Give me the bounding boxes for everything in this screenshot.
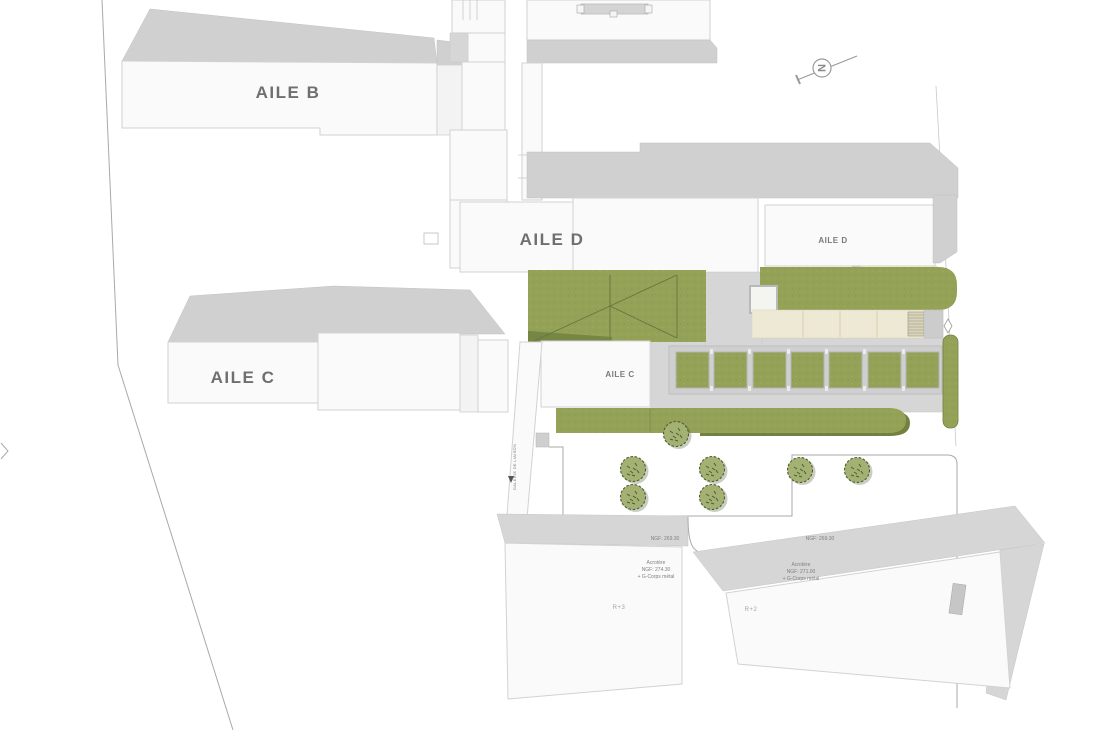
aile-d-main-label: AILE D — [520, 230, 585, 249]
aile-d-roof-mass — [527, 143, 958, 198]
aile-d-east-block — [765, 205, 935, 266]
patio-skylight — [750, 286, 777, 313]
aile-d-small-label: AILE D — [818, 236, 847, 245]
aile-d-main-block — [573, 198, 758, 273]
path-curve — [688, 517, 712, 553]
r3-label: R+3 — [613, 605, 626, 611]
aile-b-label: AILE B — [256, 83, 321, 102]
north-letter: N — [815, 64, 827, 72]
north-white-block-2 — [462, 62, 505, 137]
planter-row — [669, 346, 942, 394]
north-small-block — [452, 0, 505, 33]
lawn-east-strip — [943, 335, 958, 428]
svg-text:NGF: 274.30: NGF: 274.30 — [642, 567, 671, 573]
north-white-block — [468, 33, 505, 62]
site-plan: N AILE B AILE D AILE D — [0, 0, 1100, 730]
aile-c-small-label: AILE C — [605, 370, 634, 379]
tree-icon — [845, 458, 873, 486]
r2-label: R+2 — [745, 607, 758, 613]
svg-text:+ G-Corps métal: + G-Corps métal — [638, 574, 675, 580]
lawn-south — [556, 408, 906, 433]
planter-cell — [676, 352, 709, 388]
small-bracket — [424, 233, 438, 244]
tree-icon — [621, 457, 649, 485]
planter-cell — [906, 352, 939, 388]
stair-icon — [908, 312, 924, 336]
aile-c-main-label: AILE C — [211, 368, 276, 387]
diamond-marker — [944, 319, 952, 333]
building-aile-d: AILE D AILE D — [460, 143, 958, 281]
rooftop-bar-center — [610, 11, 617, 17]
planter-cell — [868, 352, 901, 388]
svg-text:Acrotère: Acrotère — [647, 560, 666, 566]
planter-cell — [791, 352, 824, 388]
courtyard: AILE C — [528, 267, 958, 436]
planter-cell — [829, 352, 862, 388]
rooftop-bar-end-west — [577, 5, 584, 13]
lawn-east — [760, 267, 957, 310]
tree-icon — [700, 485, 728, 513]
ngf-left-label: NGF: 269.30 — [651, 536, 680, 542]
aile-c-connector-2 — [478, 340, 508, 412]
aile-b-roof — [122, 9, 437, 63]
corridor-canopy — [536, 433, 549, 447]
aile-d-west-annex-upper — [450, 130, 507, 200]
galerie-label: GALERIE DE LIAISON — [512, 444, 517, 490]
aile-c-mid-block — [318, 333, 460, 410]
rooftop-bar-end-east — [645, 5, 652, 13]
svg-text:NGF: 271.00: NGF: 271.00 — [787, 569, 816, 575]
south-buildings: R+3 NGF: 269.30 Acrotère NGF: 274.30 + G… — [497, 506, 1045, 700]
terrace — [752, 310, 943, 338]
planter-cell — [714, 352, 747, 388]
north-main-roofband — [527, 40, 717, 63]
north-gray-block — [450, 33, 468, 62]
left-margin-tick — [1, 443, 8, 459]
svg-text:+ G-Corps métal: + G-Corps métal — [783, 576, 820, 582]
ngf-right-label: NGF: 269.30 — [806, 536, 835, 542]
building-aile-c: AILE C — [168, 286, 508, 412]
tree-icon — [621, 485, 649, 513]
planter-cell — [753, 352, 786, 388]
aile-c-connector-1 — [460, 335, 478, 412]
north-arrow-icon: N — [796, 56, 857, 84]
building-aile-b: AILE B — [122, 9, 478, 135]
svg-text:Acrotère: Acrotère — [792, 562, 811, 568]
aile-d-east-gray-end — [933, 195, 957, 263]
tree-icon — [700, 457, 728, 485]
